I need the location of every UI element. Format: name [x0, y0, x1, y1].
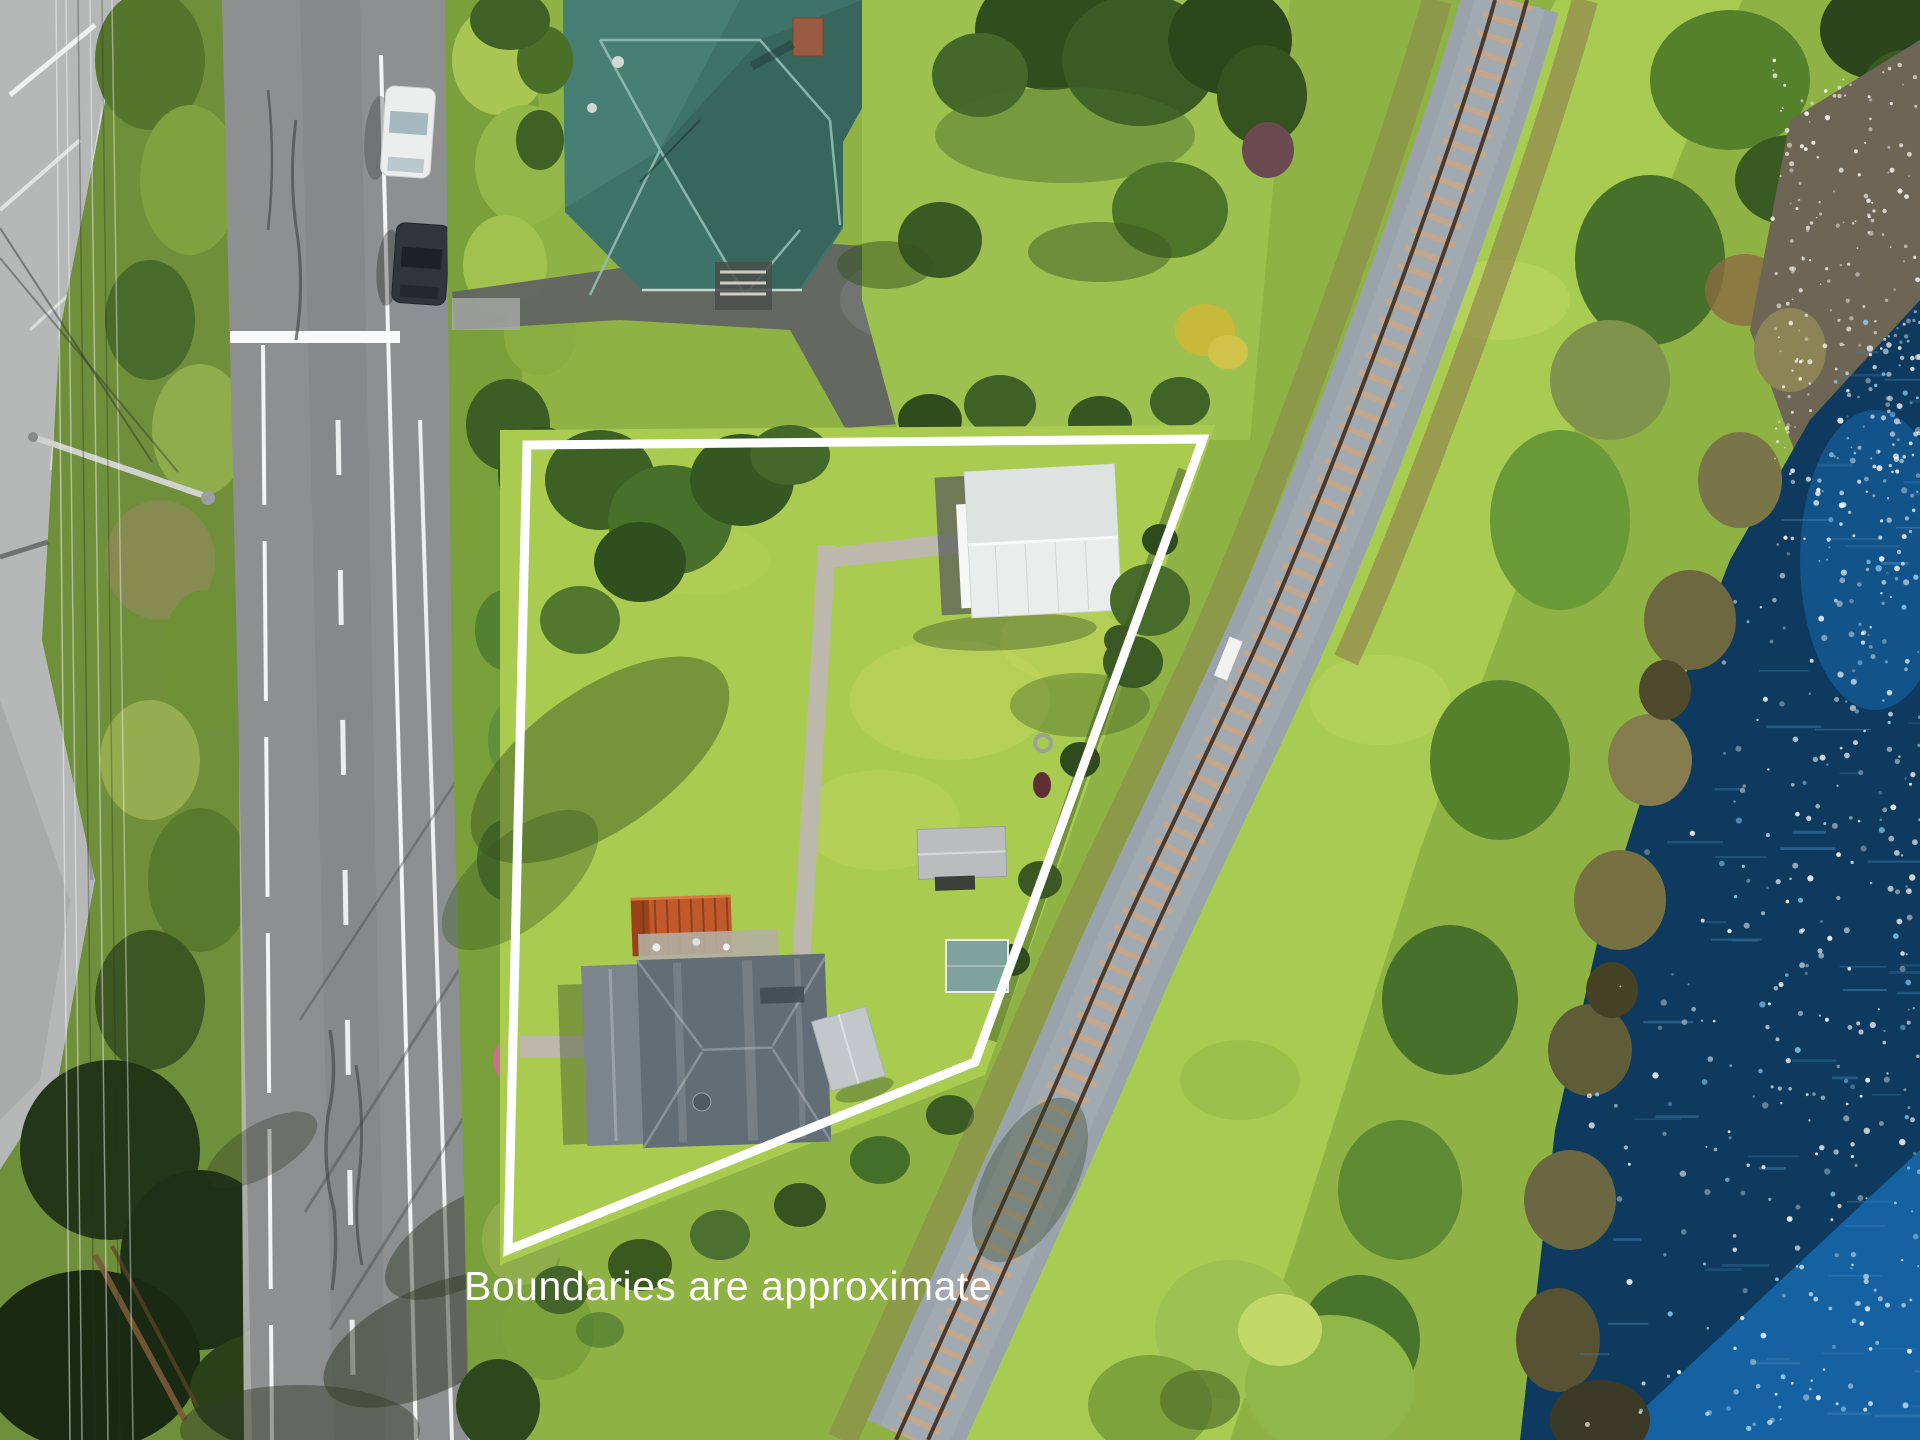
parked-dark-car [374, 221, 451, 310]
aerial-photo: Boundaries are approximate [0, 0, 1920, 1440]
satellite-dish [693, 1093, 712, 1112]
caption: Boundaries are approximate [464, 1263, 992, 1310]
neighbor-backyard [837, 0, 1307, 448]
front-steps [715, 262, 772, 310]
purple-bush [1242, 122, 1294, 178]
gray-roof-house [581, 954, 831, 1150]
red-shrub [1033, 772, 1051, 798]
scene-canvas [0, 0, 1920, 1440]
chimney [793, 18, 823, 56]
